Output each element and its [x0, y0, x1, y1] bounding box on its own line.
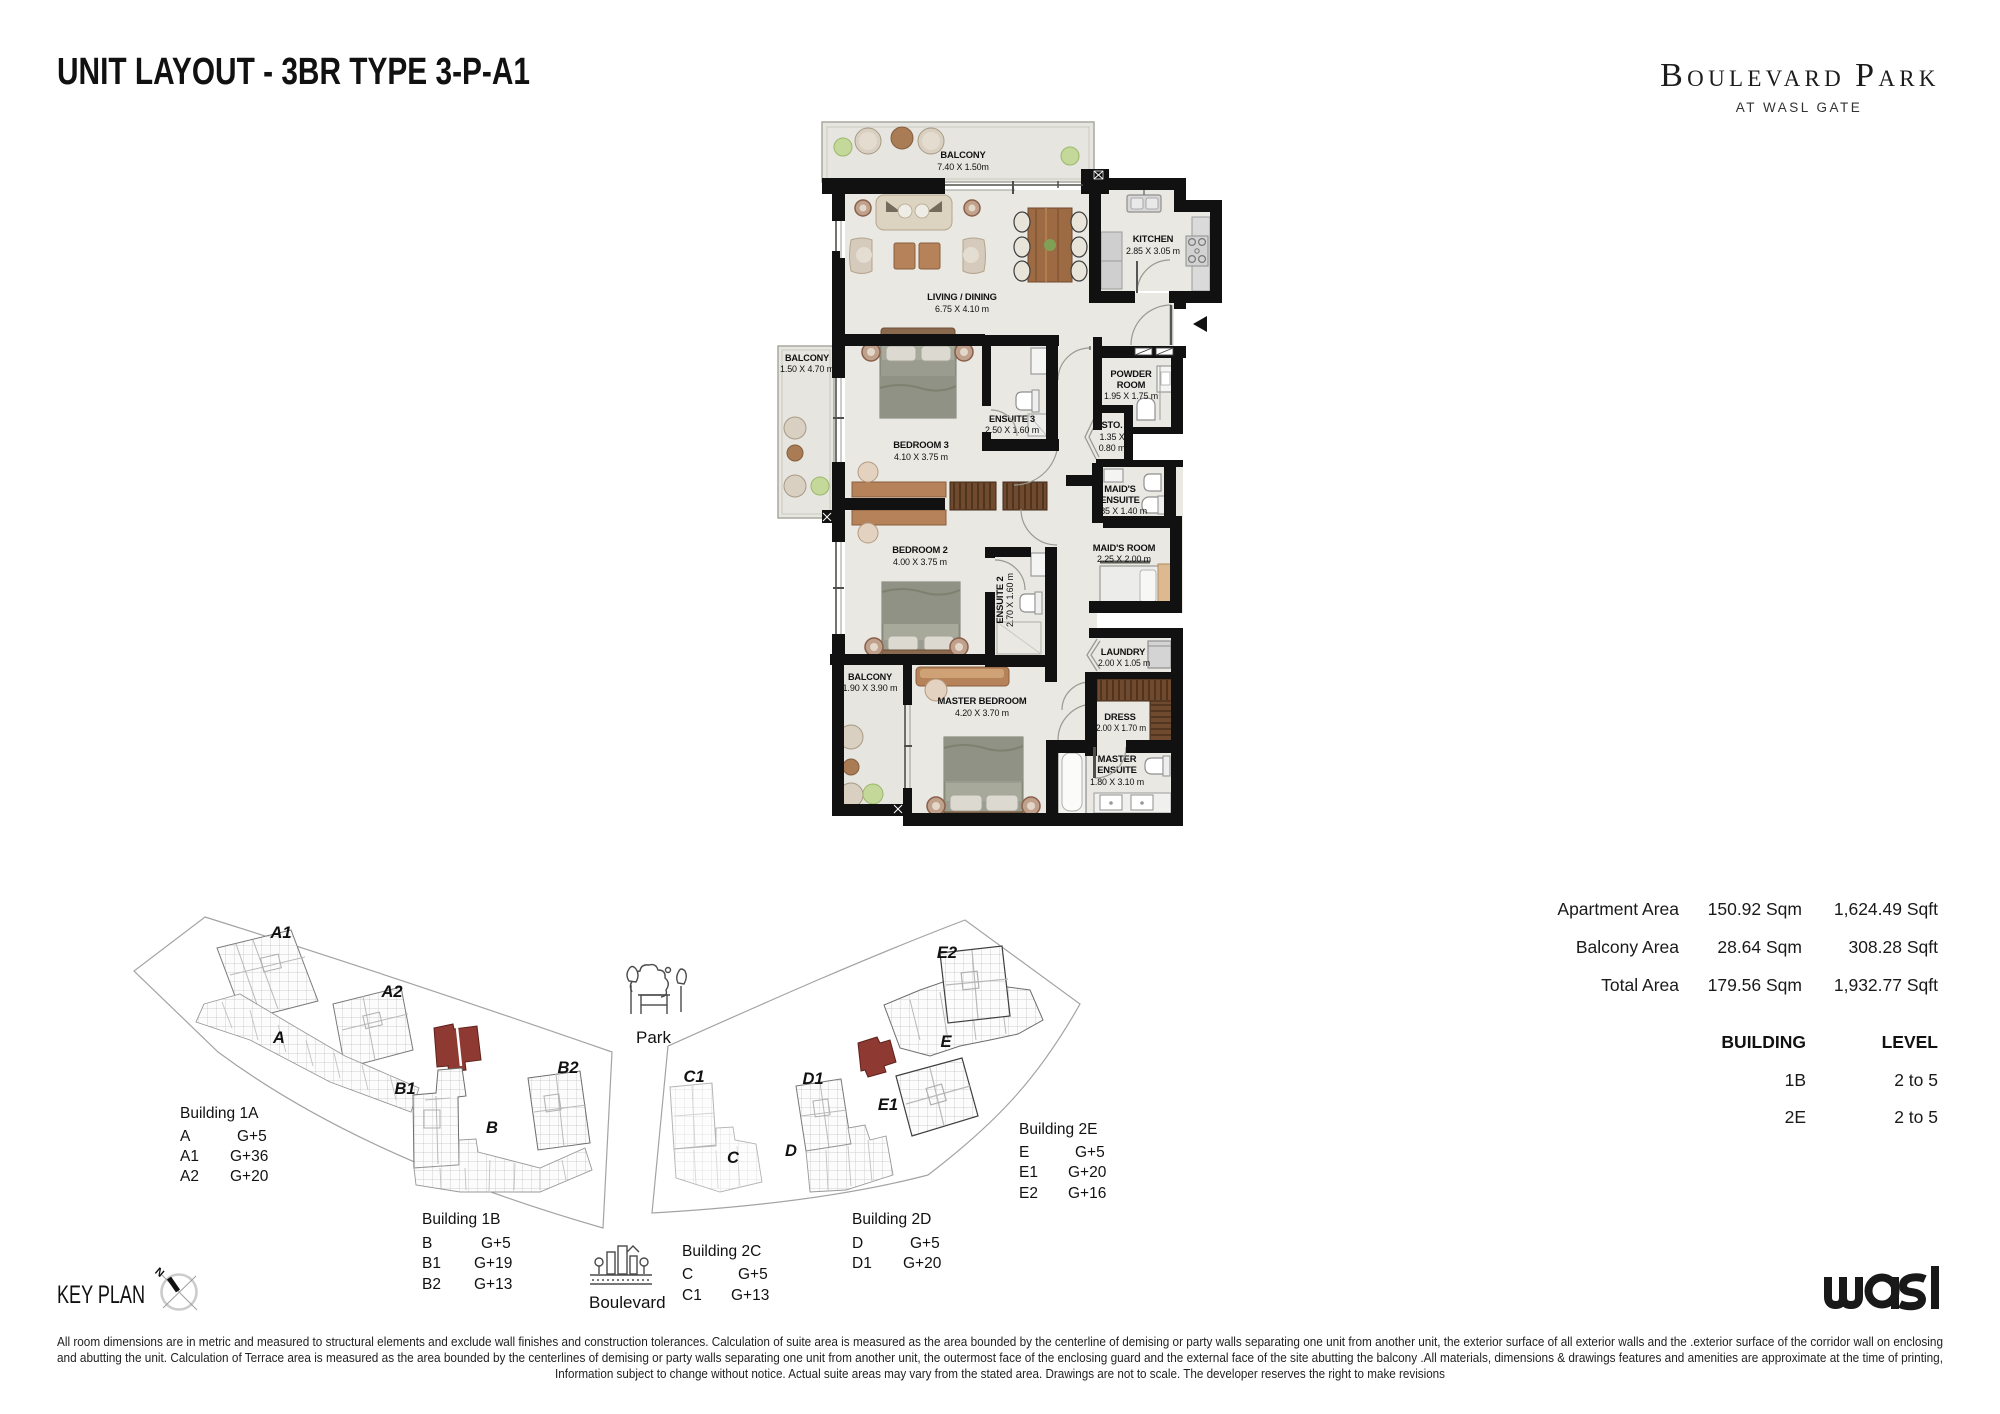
svg-text:A1: A1	[180, 1148, 199, 1165]
svg-text:Apartment Area: Apartment Area	[1557, 899, 1679, 919]
svg-text:A2: A2	[380, 983, 402, 1001]
svg-text:A: A	[180, 1128, 191, 1145]
svg-text:0.80 m: 0.80 m	[1099, 443, 1126, 453]
svg-text:2.25 X 2.00 m: 2.25 X 2.00 m	[1097, 554, 1151, 564]
svg-text:KEY PLAN: KEY PLAN	[57, 1281, 145, 1309]
svg-text:E2: E2	[1019, 1185, 1038, 1202]
svg-text:Building 2D: Building 2D	[852, 1211, 931, 1228]
svg-text:1B: 1B	[1785, 1070, 1806, 1090]
svg-text:G+5: G+5	[1075, 1144, 1105, 1161]
svg-text:4.20 X 3.70 m: 4.20 X 3.70 m	[955, 708, 1009, 718]
svg-text:G+5: G+5	[738, 1266, 768, 1283]
svg-text:UNIT LAYOUT - 3BR TYPE 3-P-A1: UNIT LAYOUT - 3BR TYPE 3-P-A1	[57, 51, 530, 93]
svg-text:DRESS: DRESS	[1104, 711, 1136, 722]
svg-text:B: B	[486, 1119, 498, 1137]
svg-text:STO.: STO.	[1101, 419, 1122, 430]
svg-text:C1: C1	[682, 1287, 702, 1304]
svg-text:B1: B1	[422, 1255, 441, 1272]
svg-text:ENSUITE 3: ENSUITE 3	[989, 413, 1035, 424]
svg-text:G+5: G+5	[481, 1235, 511, 1252]
svg-text:Information subject to change: Information subject to change without no…	[555, 1366, 1445, 1381]
svg-text:E1: E1	[878, 1096, 898, 1114]
svg-text:C1: C1	[683, 1068, 704, 1086]
svg-text:BALCONY: BALCONY	[848, 671, 893, 682]
svg-text:2 to 5: 2 to 5	[1894, 1070, 1938, 1090]
svg-text:ENSUITE 2: ENSUITE 2	[994, 576, 1005, 623]
svg-text:1.50 X 4.70 m: 1.50 X 4.70 m	[780, 364, 834, 374]
svg-text:4.00 X 3.75 m: 4.00 X 3.75 m	[893, 557, 947, 567]
svg-text:Building 2E: Building 2E	[1019, 1121, 1097, 1138]
svg-text:Boulevard: Boulevard	[589, 1293, 666, 1312]
svg-text:A2: A2	[180, 1168, 199, 1185]
svg-text:2 to 5: 2 to 5	[1894, 1107, 1938, 1127]
svg-text:D: D	[785, 1142, 797, 1160]
svg-text:2E: 2E	[1785, 1107, 1806, 1127]
svg-text:2.00 X 1.05 m: 2.00 X 1.05 m	[1098, 658, 1150, 668]
svg-text:ROOM: ROOM	[1117, 379, 1146, 390]
svg-text:1,624.49 Sqft: 1,624.49 Sqft	[1834, 899, 1938, 919]
svg-text:D1: D1	[802, 1070, 823, 1088]
svg-text:D1: D1	[852, 1255, 872, 1272]
svg-text:Balcony Area: Balcony Area	[1576, 937, 1679, 957]
svg-text:B2: B2	[557, 1059, 578, 1077]
svg-text:E1: E1	[1019, 1164, 1038, 1181]
svg-text:G+36: G+36	[230, 1148, 268, 1165]
svg-text:Building 1B: Building 1B	[422, 1211, 500, 1228]
svg-text:E2: E2	[937, 944, 957, 962]
svg-text:E: E	[940, 1033, 952, 1051]
svg-text:ENSUITE: ENSUITE	[1100, 494, 1140, 505]
svg-text:7.40 X 1.50m: 7.40 X 1.50m	[937, 162, 989, 172]
svg-text:LAUNDRY: LAUNDRY	[1101, 646, 1146, 657]
svg-text:MASTER BEDROOM: MASTER BEDROOM	[937, 695, 1026, 706]
svg-text:G+5: G+5	[237, 1128, 267, 1145]
svg-text:B: B	[422, 1235, 432, 1252]
svg-text:C: C	[682, 1266, 693, 1283]
svg-text:1.95 X 1.75 m: 1.95 X 1.75 m	[1104, 391, 1158, 401]
svg-text:G+13: G+13	[731, 1287, 769, 1304]
svg-text:BUILDING: BUILDING	[1721, 1032, 1806, 1052]
svg-text:AT WASL GATE: AT WASL GATE	[1736, 100, 1863, 115]
svg-text:2.85 X 3.05 m: 2.85 X 3.05 m	[1126, 246, 1180, 256]
svg-text:179.56 Sqm: 179.56 Sqm	[1708, 975, 1802, 995]
svg-text:2.50 X 1.60 m: 2.50 X 1.60 m	[985, 425, 1039, 435]
svg-text:MAID'S ROOM: MAID'S ROOM	[1093, 542, 1156, 553]
svg-text:4.10 X 3.75 m: 4.10 X 3.75 m	[894, 452, 948, 462]
svg-text:BEDROOM 3: BEDROOM 3	[893, 439, 948, 450]
svg-text:Total Area: Total Area	[1601, 975, 1679, 995]
svg-text:BALCONY: BALCONY	[785, 352, 830, 363]
svg-text:BALCONY: BALCONY	[940, 149, 986, 160]
svg-text:POWDER: POWDER	[1110, 368, 1152, 379]
svg-text:1,932.77 Sqft: 1,932.77 Sqft	[1834, 975, 1938, 995]
svg-text:1.80 X 3.10 m: 1.80 X 3.10 m	[1090, 777, 1144, 787]
svg-text:D: D	[852, 1235, 863, 1252]
svg-text:A: A	[272, 1029, 285, 1047]
svg-text:28.64 Sqm: 28.64 Sqm	[1717, 937, 1802, 957]
svg-text:Building 1A: Building 1A	[180, 1105, 259, 1122]
svg-text:B1: B1	[394, 1080, 415, 1098]
svg-text:G+20: G+20	[230, 1168, 269, 1185]
svg-text:G+20: G+20	[1068, 1164, 1107, 1181]
svg-text:LEVEL: LEVEL	[1882, 1032, 1939, 1052]
svg-text:Building 2C: Building 2C	[682, 1243, 761, 1260]
svg-text:150.92 Sqm: 150.92 Sqm	[1708, 899, 1802, 919]
svg-text:BEDROOM 2: BEDROOM 2	[892, 544, 947, 555]
svg-text:2.00 X 1.70 m: 2.00 X 1.70 m	[1096, 723, 1146, 733]
svg-text:G+16: G+16	[1068, 1185, 1106, 1202]
svg-text:2.70 X 1.60 m: 2.70 X 1.60 m	[1005, 573, 1015, 627]
svg-text:G+20: G+20	[903, 1255, 942, 1272]
svg-text:G+19: G+19	[474, 1255, 512, 1272]
svg-text:E: E	[1019, 1144, 1029, 1161]
svg-text:6.75 X 4.10 m: 6.75 X 4.10 m	[935, 304, 989, 314]
svg-text:G+13: G+13	[474, 1276, 512, 1293]
svg-text:and abutting the unit. Calcula: and abutting the unit. Calculation of Te…	[57, 1350, 1943, 1365]
svg-text:308.28 Sqft: 308.28 Sqft	[1848, 937, 1938, 957]
svg-text:LIVING / DINING: LIVING / DINING	[927, 291, 997, 302]
svg-text:1.90 X 3.90 m: 1.90 X 3.90 m	[843, 683, 898, 693]
svg-text:B2: B2	[422, 1276, 441, 1293]
svg-text:MAID'S: MAID'S	[1104, 483, 1136, 494]
svg-text:G+5: G+5	[910, 1235, 940, 1252]
svg-text:MASTER: MASTER	[1098, 753, 1137, 764]
svg-text:Park: Park	[636, 1028, 671, 1047]
svg-text:A1: A1	[269, 924, 291, 942]
svg-text:All room dimensions are in met: All room dimensions are in metric and me…	[57, 1334, 1943, 1349]
svg-text:1.35 X: 1.35 X	[1099, 432, 1124, 442]
svg-text:KITCHEN: KITCHEN	[1133, 233, 1174, 244]
svg-text:C: C	[727, 1149, 740, 1167]
